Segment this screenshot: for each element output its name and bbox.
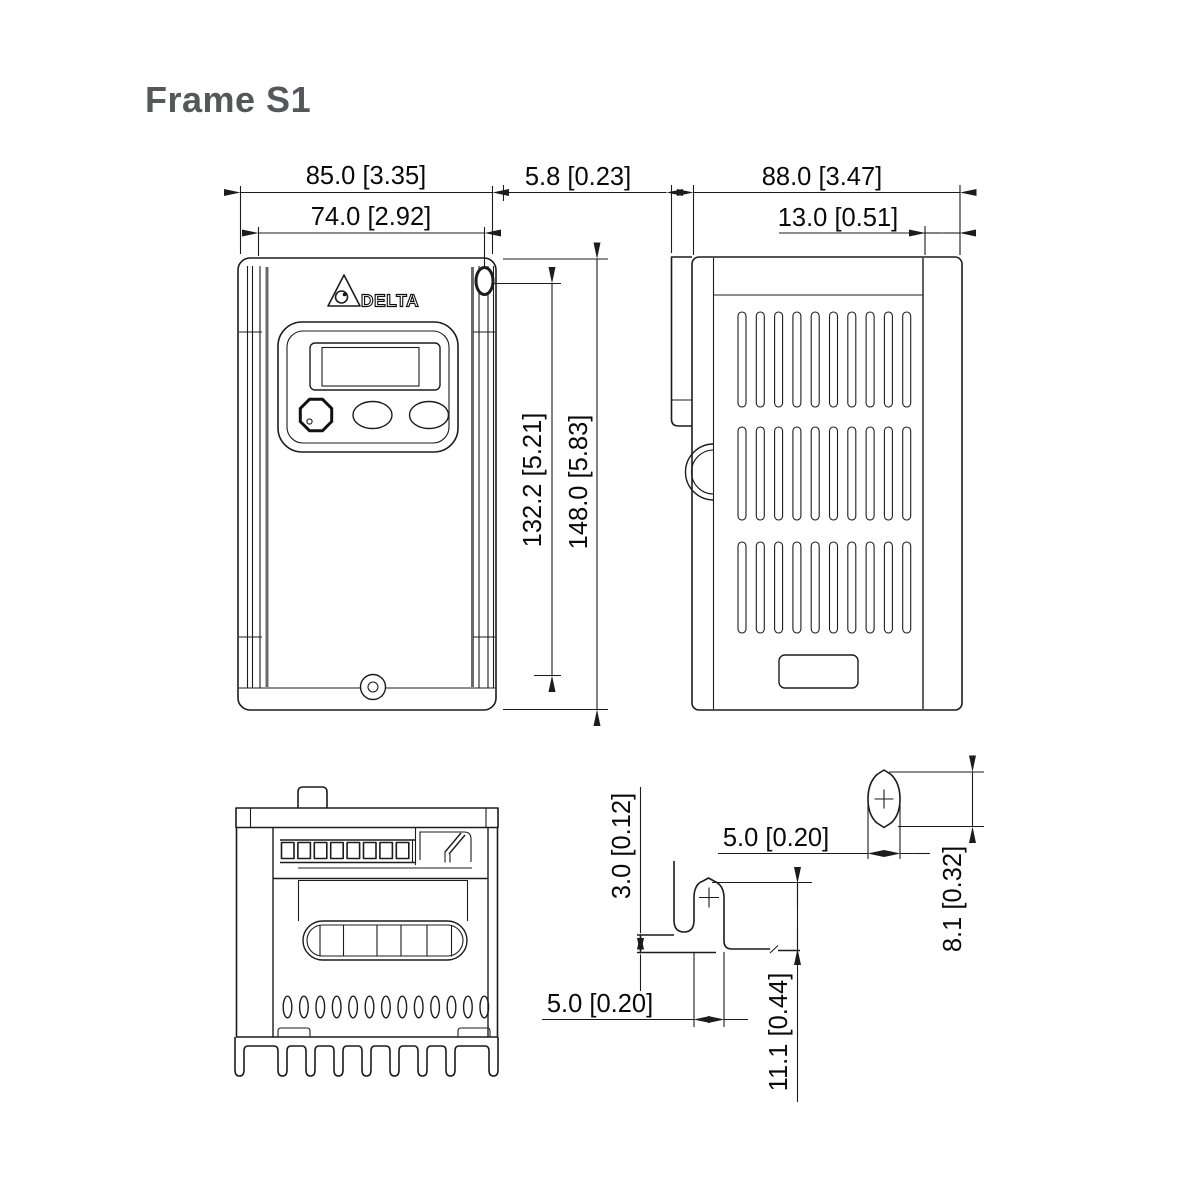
terminal-screw [364,843,377,859]
bottom-screw [361,675,386,700]
front-view: DELTA 85.0 [3.35] 74.0 [2.92] 1 [238,162,608,710]
delta-logo-icon: DELTA [328,275,419,311]
vent-slots [738,312,911,633]
terminal-screw [282,843,295,859]
vent-slot [775,542,783,633]
terminal-screw [298,843,311,859]
vent-hole [283,996,292,1018]
vent-hole [365,996,374,1018]
vent-hole [382,996,391,1018]
vent-slot [756,542,764,633]
side-bulge-outer [686,444,714,500]
side-dimensions: 5.8 [0.23] 88.0 [3.47] 13.0 [0.51] [504,163,961,255]
page-title: Frame S1 [145,79,311,120]
vent-slot [903,427,911,520]
lcd-display [310,343,440,390]
dim-tab-step: 3.0 [0.12] [608,793,636,899]
terminal-screw [314,843,327,859]
vent-slot [775,312,783,407]
vent-slot [756,427,764,520]
dim-hole-height: 8.1 [0.32] [939,846,967,952]
side-label-recess [779,655,858,688]
keypad-panel [278,322,458,452]
dim-front-width-overall: 85.0 [3.35] [306,162,427,190]
vent-slot [775,427,783,520]
dim-front-height-overall: 148.0 [5.83] [565,415,593,550]
vent-hole [447,996,456,1018]
slot-dividers [320,926,452,957]
vent-slot [903,312,911,407]
upper-hole-dimensions: 5.0 [0.20] 8.1 [0.32] [718,772,984,952]
vent-slot [884,312,892,407]
vent-slot [848,542,856,633]
vent-slot [866,312,874,407]
latch-detail [420,832,471,863]
terminal-screw [380,843,393,859]
vent-slot [811,542,819,633]
top-keyhole [476,268,493,295]
vent-slot [830,542,838,633]
delta-logo-text: DELTA [361,291,419,311]
bottom-top-tab [298,787,327,808]
vent-slot [866,542,874,633]
vent-hole [300,996,309,1018]
technical-drawing-page: Frame S1 [0,0,1200,1200]
vent-slot [811,427,819,520]
side-body-outline [692,257,962,710]
dim-side-rear-section: 13.0 [0.51] [778,204,899,232]
dim-side-front-lip: 5.8 [0.23] [525,163,631,191]
vent-hole [332,996,341,1018]
vent-slot [866,427,874,520]
terminal-screws [282,843,409,859]
knob [300,399,331,430]
vent-hole [398,996,407,1018]
bottom-top-plate [236,808,498,828]
dimension-drawing: Frame S1 [0,0,1200,1200]
vent-slot [811,312,819,407]
vent-slot [738,312,746,407]
vent-slot [793,427,801,520]
vent-slot [903,542,911,633]
slot-center-mark [699,888,719,908]
front-lip-outline [672,257,693,426]
vent-slot [884,427,892,520]
slot-profile [674,861,770,949]
hole-center-mark [875,790,894,809]
left-rail-lines [239,266,267,688]
vent-slot [848,312,856,407]
vent-slot [793,542,801,633]
bottom-view [235,787,498,1076]
heatsink-fins [235,1037,498,1076]
vent-slot [738,427,746,520]
dim-hole-width: 5.0 [0.20] [723,824,829,852]
right-rail-lines [473,266,496,688]
dim-front-height-mounting: 132.2 [5.21] [519,413,547,548]
vent-slot [738,542,746,633]
right-foot [458,1028,490,1037]
dim-front-width-mounting: 74.0 [2.92] [311,203,432,231]
front-dimensions: 85.0 [3.35] 74.0 [2.92] 132.2 [5.21] 148… [241,162,609,710]
vent-hole [431,996,440,1018]
mounting-detail-upper-hole: 5.0 [0.20] 8.1 [0.32] [718,770,984,952]
terminal-screw [331,843,344,859]
cable-slot [303,921,467,960]
vent-hole [349,996,358,1018]
vent-slot [830,427,838,520]
terminal-strip [280,828,416,866]
vent-hole [464,996,473,1018]
vent-slot [830,312,838,407]
vent-hole [316,996,325,1018]
vent-slot [793,312,801,407]
vent-slot [884,542,892,633]
dim-slot-height: 11.1 [0.44] [765,973,793,1092]
front-body-outline [238,258,496,710]
terminal-screw [396,843,409,859]
dim-side-depth-overall: 88.0 [3.47] [762,163,883,191]
side-bulge-inner [692,450,714,494]
vent-slot [756,312,764,407]
terminal-screw [347,843,360,859]
vent-slot [848,427,856,520]
vent-hole [414,996,423,1018]
button-left [353,402,392,429]
left-foot [278,1028,310,1037]
dim-slot-width: 5.0 [0.20] [547,990,653,1018]
button-right [410,402,449,429]
vent-hole-row [283,996,488,1018]
